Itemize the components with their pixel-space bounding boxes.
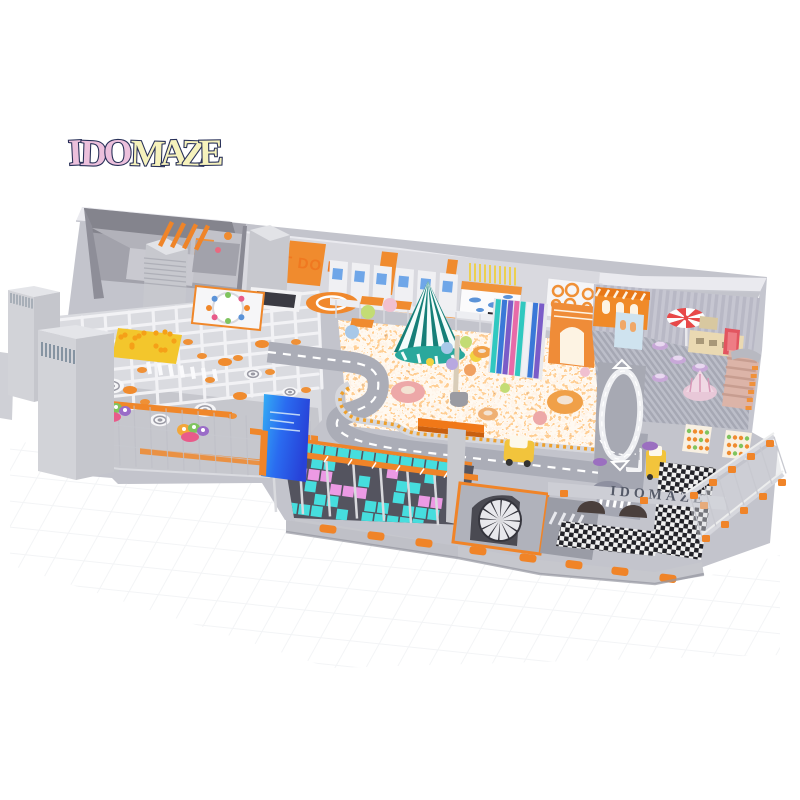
svg-text:E: E: [198, 133, 223, 174]
svg-text:O: O: [103, 132, 133, 174]
